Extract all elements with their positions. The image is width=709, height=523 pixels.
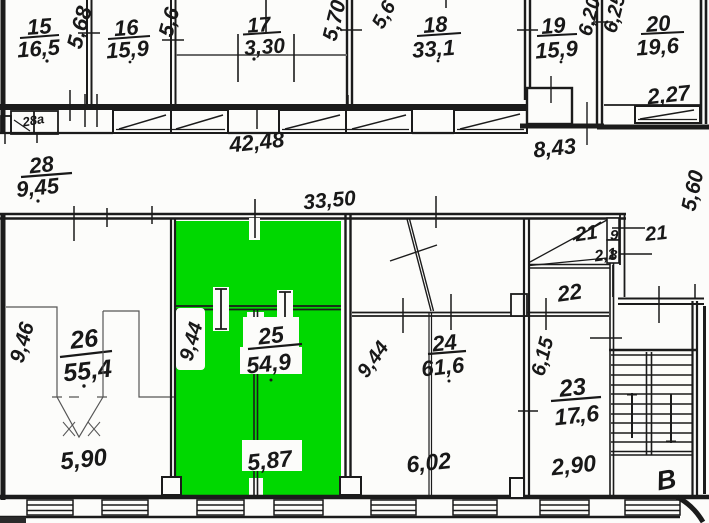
svg-text:5,87: 5,87 [246,445,294,476]
svg-text:54,9: 54,9 [245,348,292,379]
svg-text:15,9: 15,9 [105,36,150,64]
svg-text:33,1: 33,1 [411,35,455,63]
svg-text:5,90: 5,90 [59,444,109,476]
svg-text:8,43: 8,43 [532,133,577,162]
svg-text:21: 21 [643,222,668,246]
svg-text:17,6: 17,6 [553,400,600,431]
svg-text:26: 26 [68,324,101,355]
svg-text:6,02: 6,02 [405,447,452,478]
svg-text:9: 9 [610,227,619,244]
svg-text:16,5: 16,5 [16,34,61,62]
svg-text:3,30: 3,30 [243,34,286,60]
svg-text:19,6: 19,6 [635,33,680,61]
svg-text:61,6: 61,6 [420,352,466,381]
svg-text:15,9: 15,9 [534,36,579,64]
svg-text:9,45: 9,45 [15,173,61,202]
svg-text:2,27: 2,27 [645,80,693,110]
svg-text:2,90: 2,90 [549,450,597,481]
svg-text:33,50: 33,50 [302,187,357,215]
svg-text:2,1: 2,1 [592,245,617,265]
svg-text:22: 22 [555,278,584,306]
svg-text:55,4: 55,4 [62,355,113,388]
